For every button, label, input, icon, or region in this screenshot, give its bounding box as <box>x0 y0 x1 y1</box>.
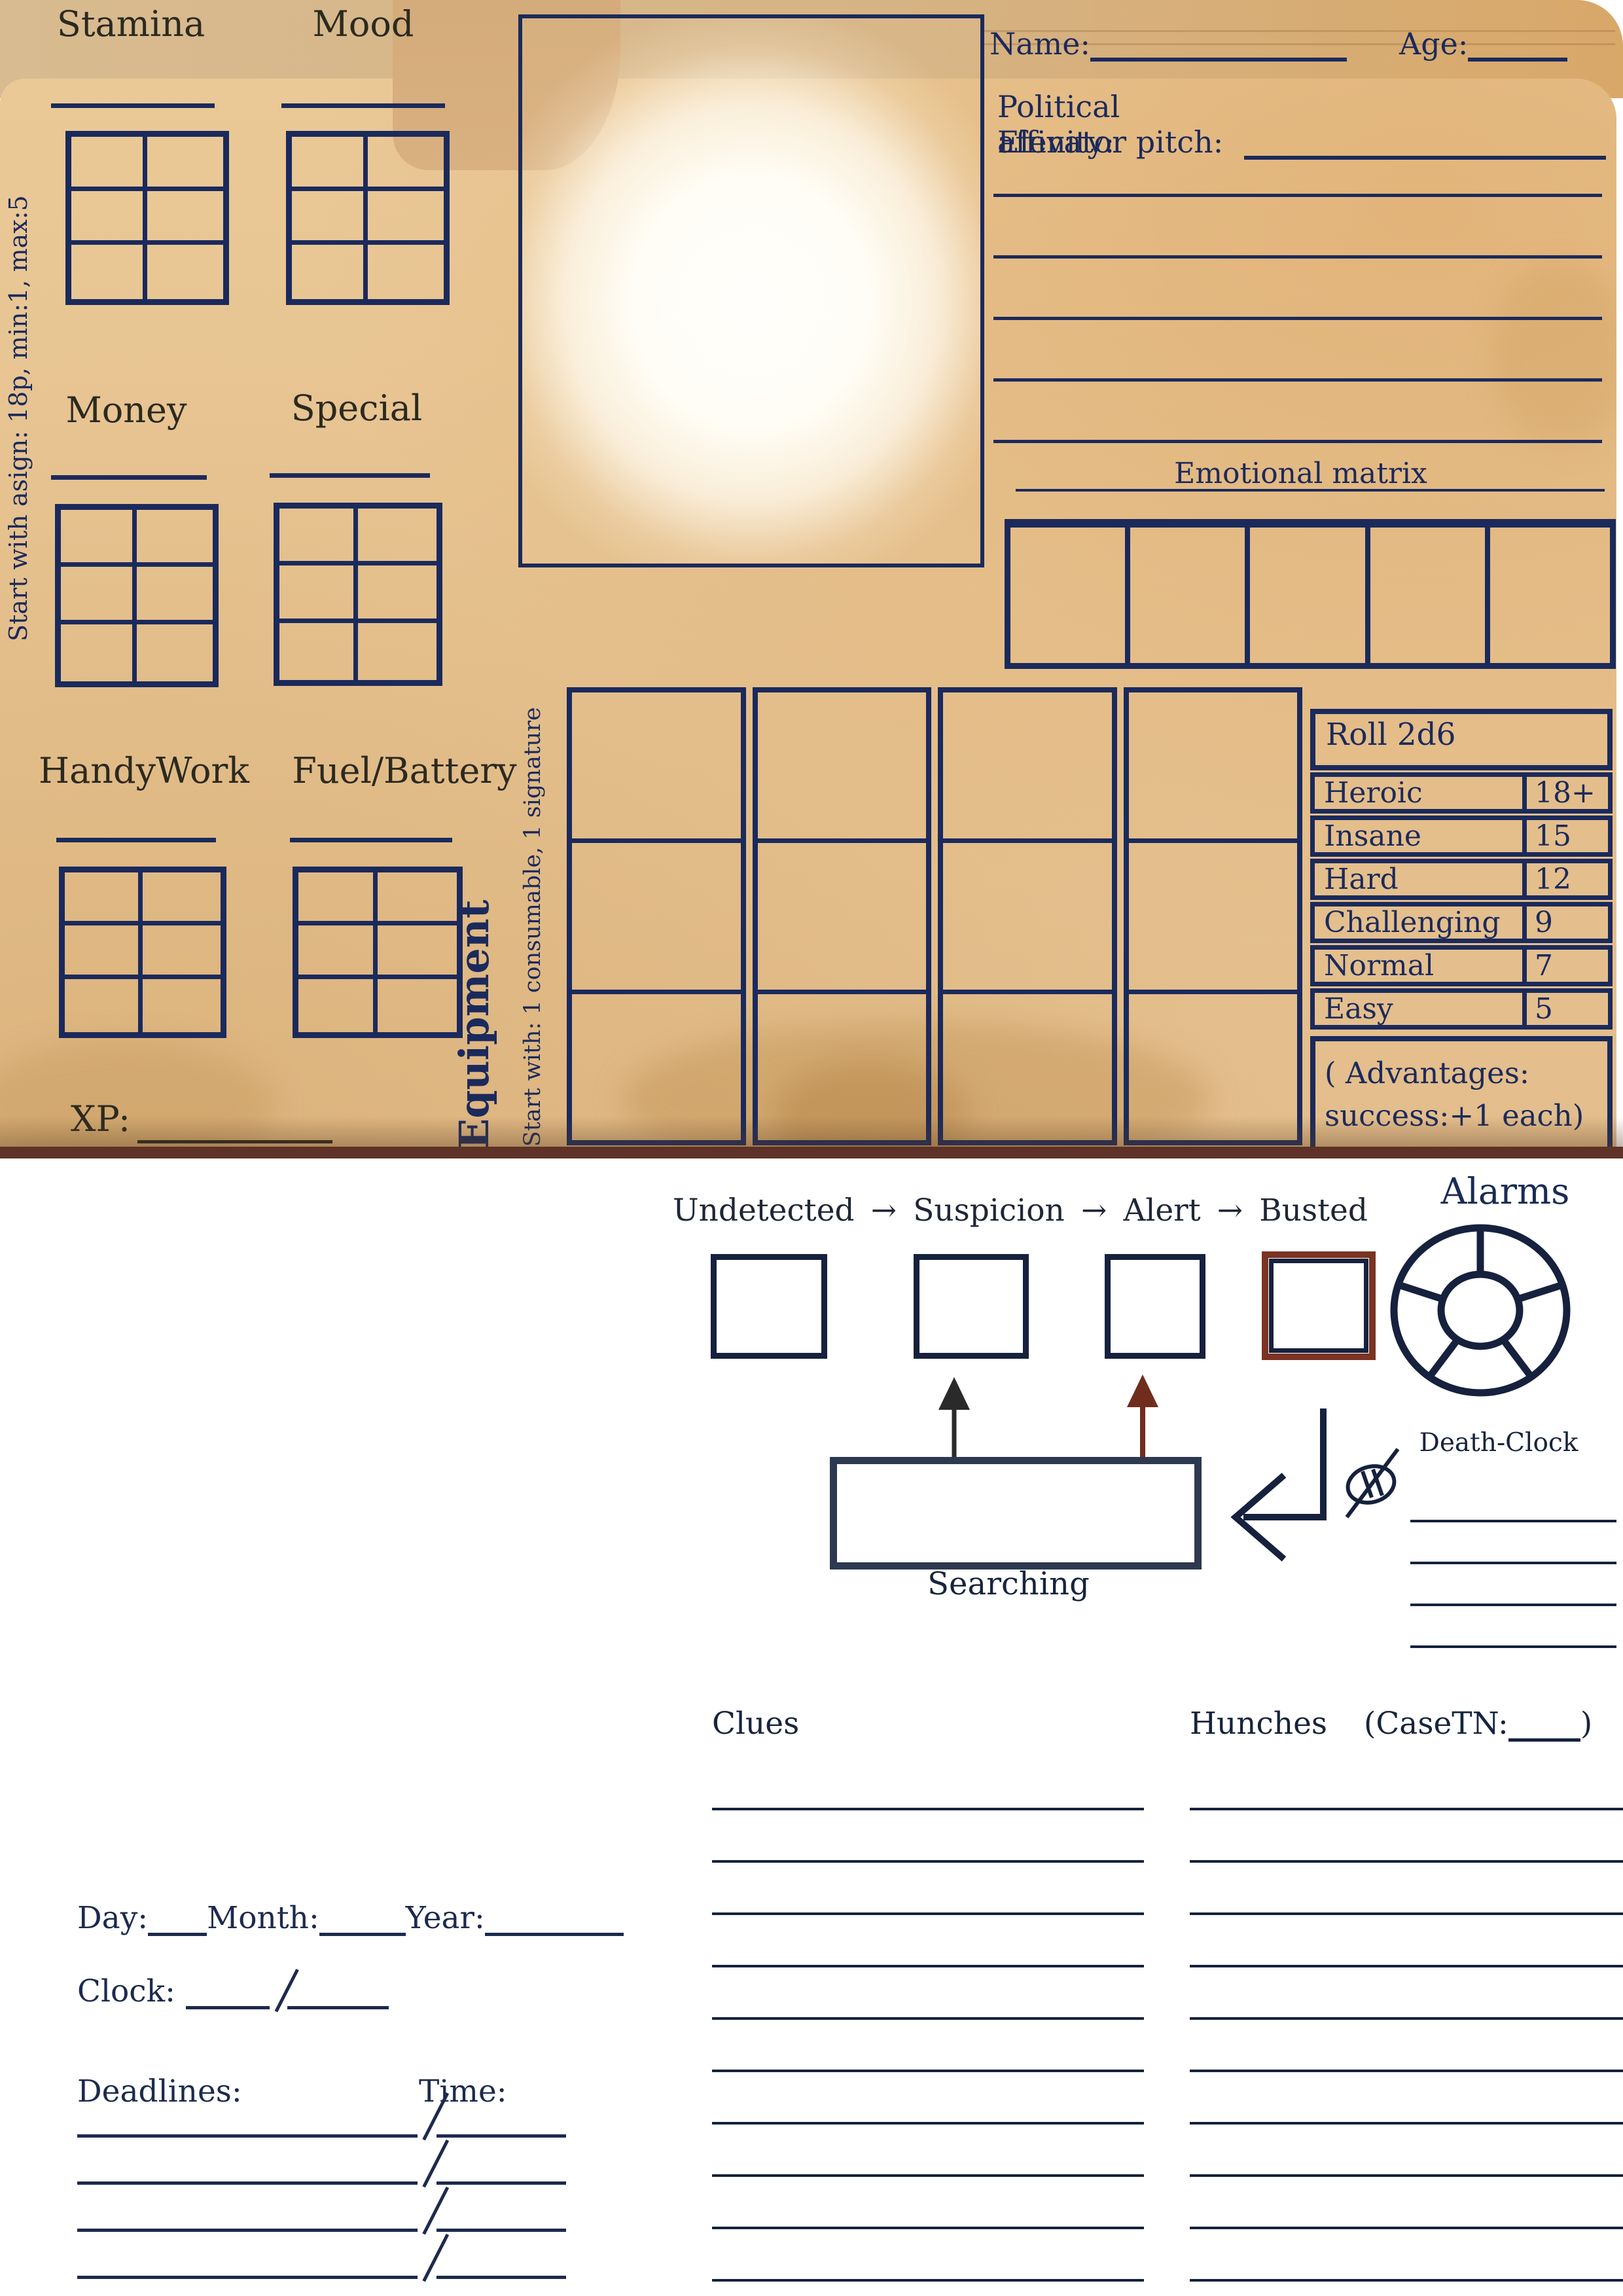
stat-cell[interactable] <box>137 567 213 624</box>
deadline-row <box>77 2144 566 2185</box>
folder-shadow <box>0 1117 1623 1148</box>
roll-table-row: Normal 7 <box>1310 945 1613 986</box>
clue-line[interactable] <box>712 2279 1144 2282</box>
difficulty-target: 18+ <box>1522 777 1608 809</box>
folder-edge-strip <box>0 1147 1623 1158</box>
stat-label-fuel-battery: Fuel/Battery <box>280 750 529 791</box>
difficulty-target: 5 <box>1522 993 1608 1025</box>
deadline-field-line[interactable] <box>77 2202 418 2232</box>
difficulty-name: Heroic <box>1315 777 1522 809</box>
emotional-matrix-title: Emotional matrix <box>995 457 1607 490</box>
right-arrow-glyph: → <box>1217 1193 1243 1229</box>
eye-slash-icon <box>1344 1449 1399 1517</box>
roll-table-title: Roll 2d6 <box>1310 709 1613 770</box>
stat-cell[interactable] <box>147 191 223 245</box>
hunch-line[interactable] <box>1190 2279 1623 2282</box>
clue-line[interactable] <box>712 2174 1144 2177</box>
stat-cell[interactable] <box>378 925 457 978</box>
equipment-column <box>753 687 932 1145</box>
death-clock-label: Death-Clock <box>1400 1428 1597 1458</box>
stat-cell[interactable] <box>298 925 378 978</box>
stat-label-special: Special <box>262 387 452 429</box>
equipment-slot[interactable] <box>572 692 741 843</box>
day-label: Day: <box>77 1900 148 1936</box>
stat-cell[interactable] <box>71 137 147 191</box>
busted-return-arrow-icon <box>1236 1408 1323 1559</box>
day-field-line[interactable] <box>148 1907 207 1936</box>
alarms-title: Alarms <box>1407 1170 1603 1212</box>
clues-header: Clues <box>712 1706 799 1742</box>
emotion-cell[interactable] <box>1250 528 1370 663</box>
pitch-line[interactable] <box>993 440 1602 443</box>
equipment-slot[interactable] <box>943 692 1112 843</box>
stat-cell[interactable] <box>358 565 437 622</box>
difficulty-target: 9 <box>1522 906 1608 939</box>
stat-cell[interactable] <box>61 510 137 567</box>
special-grid <box>274 503 442 686</box>
equipment-title-rotated: Equipment <box>450 898 507 1149</box>
handywork-value-line[interactable] <box>56 838 216 842</box>
stat-cell[interactable] <box>61 567 137 624</box>
assignment-note-rotated: Start with asign: 18p, min:1, max:5 <box>4 118 39 641</box>
searching-box[interactable] <box>830 1457 1202 1570</box>
death-clock-line[interactable] <box>1410 1645 1616 1648</box>
pitch-line[interactable] <box>993 317 1602 320</box>
case-tn-field: (CaseTN: ) <box>1364 1706 1592 1742</box>
case-tn-field-line[interactable] <box>1508 1712 1580 1742</box>
equipment-slot[interactable] <box>1129 843 1298 994</box>
alarms-wheel-icon[interactable] <box>1389 1221 1572 1399</box>
roll-table-row: Insane 15 <box>1310 816 1613 857</box>
stat-cell[interactable] <box>292 191 368 245</box>
pitch-line[interactable] <box>993 255 1602 259</box>
clue-line[interactable] <box>712 2017 1144 2020</box>
difficulty-name: Challenging <box>1315 906 1522 939</box>
clock-field-line[interactable] <box>186 1980 270 2009</box>
emotion-cell[interactable] <box>1490 528 1610 663</box>
hunch-line[interactable] <box>1190 2227 1623 2229</box>
stat-cell[interactable] <box>143 979 221 1032</box>
clock-field-line2[interactable] <box>287 1980 389 2009</box>
death-clock-line[interactable] <box>1410 1562 1616 1564</box>
stat-cell[interactable] <box>279 623 358 680</box>
hunch-line[interactable] <box>1190 1860 1623 1863</box>
month-field-line[interactable] <box>319 1907 406 1936</box>
clock-label: Clock: <box>77 1973 175 2009</box>
emotional-matrix-underline <box>1016 489 1605 492</box>
clue-line[interactable] <box>712 1912 1144 1915</box>
year-field-line[interactable] <box>485 1907 624 1936</box>
clock-row: Clock: <box>77 1969 389 2009</box>
stat-cell[interactable] <box>292 245 368 299</box>
equipment-grid <box>567 687 1302 1145</box>
roll-table-row: Challenging 9 <box>1310 902 1613 943</box>
stage-label-alert: Alert <box>1123 1193 1200 1229</box>
alert-checkbox[interactable] <box>1105 1254 1205 1359</box>
character-sheet-page: Start with asign: 18p, min:1, max:5 Stam… <box>0 0 1623 2296</box>
difficulty-name: Hard <box>1315 863 1522 895</box>
month-label: Month: <box>207 1900 319 1936</box>
name-label: Name: <box>990 26 1090 62</box>
stat-cell[interactable] <box>298 979 378 1032</box>
busted-checkbox[interactable] <box>1262 1251 1376 1360</box>
name-field-line[interactable] <box>1090 29 1347 62</box>
case-tn-close-label: ) <box>1580 1706 1592 1742</box>
stamina-value-line[interactable] <box>51 103 215 108</box>
stat-cell[interactable] <box>368 245 444 299</box>
stage-label-suspicion: Suspicion <box>913 1193 1065 1229</box>
emotional-matrix-grid <box>1005 519 1616 669</box>
advantages-note-line1: ( Advantages: <box>1325 1052 1599 1094</box>
mood-grid <box>286 131 450 305</box>
difficulty-name: Normal <box>1315 950 1522 982</box>
deadline-field-line[interactable] <box>77 2250 418 2279</box>
stat-cell[interactable] <box>71 245 147 299</box>
clue-line[interactable] <box>712 2070 1144 2072</box>
stat-cell[interactable] <box>292 137 368 191</box>
deadline-time-line[interactable] <box>437 2250 566 2279</box>
stat-cell[interactable] <box>71 191 147 245</box>
stat-cell[interactable] <box>279 509 358 565</box>
equipment-slot[interactable] <box>943 843 1112 994</box>
money-value-line[interactable] <box>51 475 207 480</box>
stat-cell[interactable] <box>378 872 457 925</box>
clue-line[interactable] <box>712 1965 1144 1967</box>
difficulty-name: Insane <box>1315 820 1522 852</box>
name-row: Name: Age: <box>990 26 1611 62</box>
stat-cell[interactable] <box>358 509 437 565</box>
stat-cell[interactable] <box>61 624 137 681</box>
equipment-slot[interactable] <box>1129 692 1298 843</box>
difficulty-target: 12 <box>1522 863 1608 895</box>
hunch-line[interactable] <box>1190 2017 1623 2020</box>
death-clock-line[interactable] <box>1410 1604 1616 1606</box>
undetected-checkbox[interactable] <box>711 1254 827 1359</box>
elevator-pitch-label: Elevator pitch: <box>997 124 1223 160</box>
pitch-line[interactable] <box>993 378 1602 382</box>
searching-label: Searching <box>830 1566 1187 1602</box>
hunch-line[interactable] <box>1190 1912 1623 1915</box>
stage-label-undetected: Undetected <box>673 1193 855 1229</box>
case-tn-open-label: (CaseTN: <box>1364 1706 1508 1742</box>
handywork-grid <box>59 867 226 1038</box>
clue-line[interactable] <box>712 2122 1144 2125</box>
deadline-field-line[interactable] <box>77 2155 418 2185</box>
stage-label-busted: Busted <box>1259 1193 1368 1229</box>
clue-line[interactable] <box>712 1860 1144 1863</box>
clue-line[interactable] <box>712 2227 1144 2229</box>
difficulty-target: 7 <box>1522 950 1608 982</box>
hunch-line[interactable] <box>1190 1808 1623 1810</box>
stat-label-stamina: Stamina <box>39 3 223 45</box>
death-clock-line[interactable] <box>1410 1520 1616 1522</box>
stamina-grid <box>65 131 229 305</box>
deadline-row <box>77 2191 566 2232</box>
busted-checkbox-inner <box>1269 1259 1368 1353</box>
detection-track-labels: Undetected → Suspicion → Alert → Busted <box>673 1193 1368 1229</box>
deadline-row <box>77 2097 566 2138</box>
emotion-cell[interactable] <box>1130 528 1250 663</box>
mood-value-line[interactable] <box>281 103 445 108</box>
stat-cell[interactable] <box>298 872 378 925</box>
hunch-line[interactable] <box>1190 2070 1623 2072</box>
roll-table-row: Heroic 18+ <box>1310 772 1613 814</box>
stat-cell[interactable] <box>147 245 223 299</box>
death-clock-lines <box>1410 1520 1616 1687</box>
date-row: Day: Month: Year: <box>77 1895 624 1936</box>
equipment-slot[interactable] <box>758 692 927 843</box>
equipment-slot[interactable] <box>572 843 741 994</box>
hunch-line[interactable] <box>1190 2122 1623 2125</box>
right-arrow-glyph: → <box>871 1193 897 1229</box>
equipment-column <box>567 687 746 1145</box>
deadline-field-line[interactable] <box>77 2108 418 2138</box>
stat-cell[interactable] <box>368 191 444 245</box>
age-field-line[interactable] <box>1468 29 1567 62</box>
hunches-header: Hunches <box>1190 1706 1327 1742</box>
difficulty-name: Easy <box>1315 993 1522 1025</box>
elevator-pitch-lines <box>993 194 1602 501</box>
deadline-time-line[interactable] <box>437 2108 566 2138</box>
hunch-line[interactable] <box>1190 2174 1623 2177</box>
equipment-note-rotated: Start with: 1 consumable, 1 signature <box>520 681 550 1147</box>
deadline-row <box>77 2238 566 2279</box>
stat-label-mood: Mood <box>275 3 452 45</box>
age-label: Age: <box>1399 26 1468 62</box>
stat-cell[interactable] <box>137 510 213 567</box>
hunch-line[interactable] <box>1190 1965 1623 1967</box>
political-affinity-field-line[interactable] <box>1244 127 1606 160</box>
equipment-column <box>1124 687 1303 1145</box>
stat-cell[interactable] <box>65 872 143 925</box>
special-value-line[interactable] <box>270 473 430 478</box>
equipment-slot[interactable] <box>758 843 927 994</box>
hunches-lines <box>1190 1808 1623 2296</box>
pitch-line[interactable] <box>993 194 1602 197</box>
stat-cell[interactable] <box>65 925 143 978</box>
stat-cell[interactable] <box>143 925 221 978</box>
stat-cell[interactable] <box>279 565 358 622</box>
stat-cell[interactable] <box>143 872 221 925</box>
fuel-battery-value-line[interactable] <box>290 838 452 842</box>
equipment-column <box>938 687 1117 1145</box>
stat-label-handywork: HandyWork <box>23 750 265 791</box>
deadline-time-line[interactable] <box>437 2155 566 2185</box>
stat-cell[interactable] <box>378 979 457 1032</box>
stat-cell[interactable] <box>368 137 444 191</box>
stat-cell[interactable] <box>147 137 223 191</box>
stat-cell[interactable] <box>65 979 143 1032</box>
portrait-box[interactable] <box>518 14 984 567</box>
deadline-time-line[interactable] <box>437 2202 566 2232</box>
year-label: Year: <box>406 1900 485 1936</box>
emotion-cell[interactable] <box>1370 528 1490 663</box>
clue-line[interactable] <box>712 1808 1144 1810</box>
suspicion-checkbox[interactable] <box>914 1254 1029 1359</box>
roll-2d6-table: Roll 2d6 Heroic 18+ Insane 15 Hard 12 Ch… <box>1310 709 1613 1152</box>
up-arrow-to-alert-icon <box>1127 1374 1158 1470</box>
roll-table-row: Hard 12 <box>1310 859 1613 900</box>
roll-table-row: Easy 5 <box>1310 988 1613 1030</box>
fuel-battery-grid <box>293 867 463 1038</box>
difficulty-target: 15 <box>1522 820 1608 852</box>
right-arrow-glyph: → <box>1081 1193 1107 1229</box>
money-grid <box>55 504 219 687</box>
emotion-cell[interactable] <box>1010 528 1130 663</box>
stat-cell[interactable] <box>358 623 437 680</box>
clues-lines <box>712 1808 1144 2296</box>
stat-label-money: Money <box>38 389 215 431</box>
stat-cell[interactable] <box>137 624 213 681</box>
